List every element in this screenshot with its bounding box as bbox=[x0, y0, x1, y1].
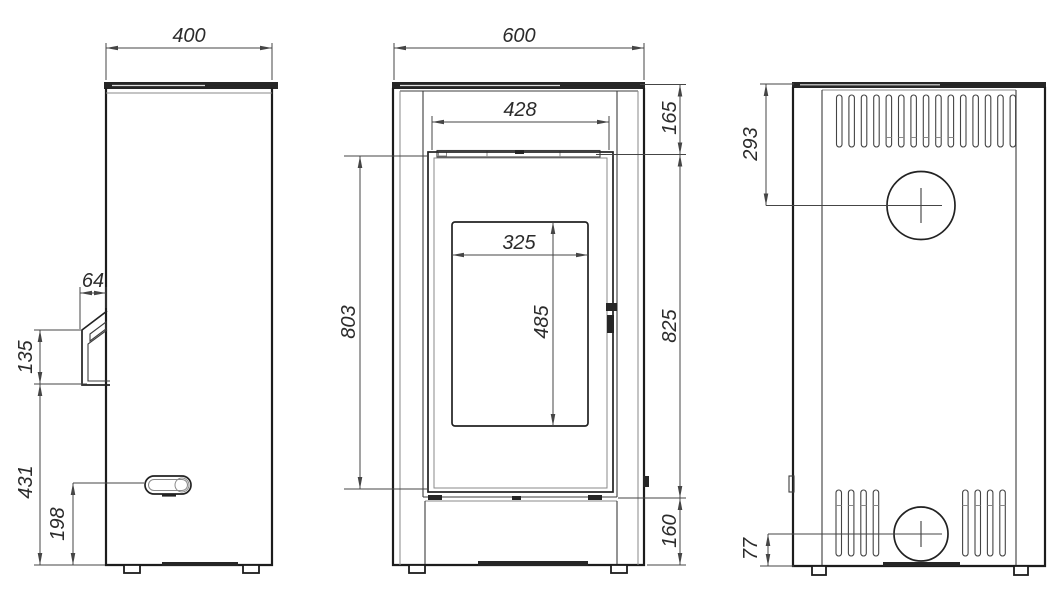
base-panel bbox=[423, 495, 617, 566]
dim-label-428: 428 bbox=[503, 99, 536, 121]
dim-lever-above-floor: 198 bbox=[47, 483, 144, 565]
vent-slot bbox=[948, 95, 954, 147]
vent-slot bbox=[886, 95, 892, 147]
back-view: 293 77 bbox=[740, 82, 1046, 575]
vent-slot bbox=[836, 490, 842, 556]
ash-lever bbox=[145, 476, 191, 496]
dim-label-165: 165 bbox=[659, 100, 681, 134]
dim-label-825: 825 bbox=[659, 308, 681, 342]
dim-label-485: 485 bbox=[531, 304, 553, 338]
dim-door-height: 803 bbox=[338, 156, 428, 489]
vent-slot bbox=[861, 490, 867, 556]
side-front-foot bbox=[124, 565, 140, 573]
top-vents bbox=[837, 95, 1016, 147]
dim-glass-width: 325 bbox=[452, 232, 588, 255]
dim-label-431: 431 bbox=[15, 465, 37, 498]
front-left-foot bbox=[409, 565, 425, 573]
dim-label-325: 325 bbox=[502, 232, 536, 254]
dim-handle-depth: 64 bbox=[80, 270, 106, 329]
dim-label-600: 600 bbox=[502, 25, 535, 47]
back-right-foot bbox=[1014, 566, 1028, 575]
dim-label-198: 198 bbox=[47, 507, 69, 540]
side-body-outline bbox=[106, 89, 272, 565]
vent-slot bbox=[848, 490, 854, 556]
door-latch bbox=[606, 303, 617, 311]
front-bottom-strip bbox=[478, 561, 588, 566]
vent-slot bbox=[975, 490, 981, 556]
front-body-outline bbox=[393, 89, 644, 565]
side-bottom-strip bbox=[162, 562, 238, 566]
vent-slot bbox=[1010, 95, 1016, 147]
firebox-door bbox=[428, 152, 617, 492]
vent-slot bbox=[861, 95, 867, 147]
dim-front-width: 600 bbox=[394, 25, 644, 80]
vent-slot bbox=[936, 95, 942, 147]
dim-label-64: 64 bbox=[82, 270, 104, 292]
front-view: 600 428 165 825 160 803 bbox=[338, 25, 686, 573]
vent-slot bbox=[963, 490, 969, 556]
dim-top-opening-width: 428 bbox=[432, 99, 609, 150]
vent-slot bbox=[923, 95, 929, 147]
vent-slot bbox=[837, 95, 843, 147]
dim-top-section-height: 165 bbox=[640, 85, 686, 155]
stove-technical-drawing: 400 64 135 431 198 bbox=[0, 0, 1064, 598]
vent-slot bbox=[873, 490, 879, 556]
dim-label-135: 135 bbox=[15, 339, 37, 373]
dim-base-height: 160 bbox=[647, 498, 686, 565]
vent-slot bbox=[899, 95, 905, 147]
dim-label-77: 77 bbox=[740, 537, 762, 560]
back-bottom-strip bbox=[883, 562, 960, 566]
dim-label-803: 803 bbox=[338, 305, 360, 338]
vent-slot bbox=[961, 95, 967, 147]
vent-slot bbox=[987, 490, 993, 556]
door-top-band bbox=[437, 150, 600, 157]
back-body-outline bbox=[793, 88, 1045, 566]
dim-handle-length: 135 bbox=[15, 330, 87, 384]
vent-slot bbox=[849, 95, 855, 147]
vent-slot bbox=[1000, 490, 1006, 556]
dim-label-293: 293 bbox=[740, 127, 762, 161]
back-left-foot bbox=[812, 566, 826, 575]
vent-slot bbox=[874, 95, 880, 147]
bottom-vents-left bbox=[836, 490, 879, 556]
vent-slot bbox=[973, 95, 979, 147]
dim-label-400: 400 bbox=[172, 25, 205, 47]
vent-slot bbox=[911, 95, 917, 147]
front-right-foot bbox=[611, 565, 627, 573]
door-latch-lower bbox=[607, 315, 614, 333]
dim-side-width: 400 bbox=[106, 25, 272, 80]
vent-slot bbox=[998, 95, 1004, 147]
dim-label-160: 160 bbox=[659, 514, 681, 547]
side-view: 400 64 135 431 198 bbox=[15, 25, 278, 573]
bottom-vents-right bbox=[963, 490, 1006, 556]
side-hinge-bump bbox=[643, 476, 649, 487]
side-rear-foot bbox=[243, 565, 259, 573]
vent-slot bbox=[985, 95, 991, 147]
